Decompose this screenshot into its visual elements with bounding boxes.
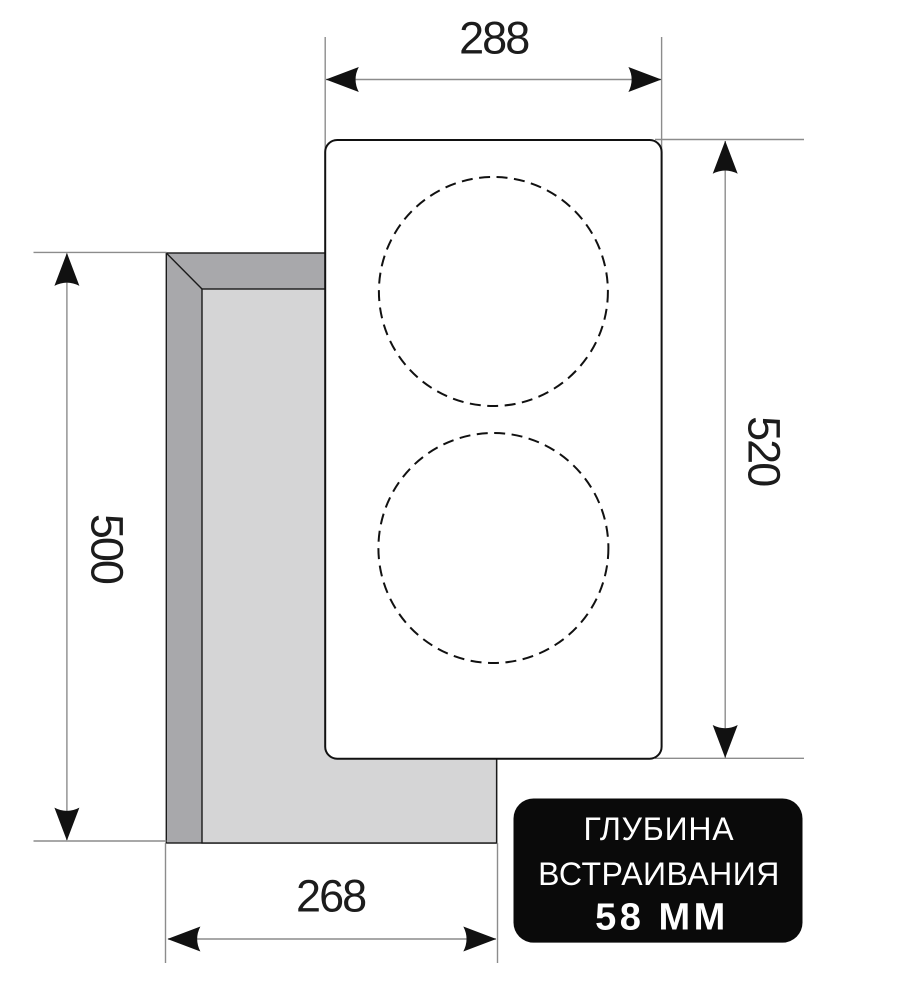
svg-text:ВСТРАИВАНИЯ: ВСТРАИВАНИЯ [538, 856, 780, 892]
svg-text:58 ММ: 58 ММ [595, 897, 729, 939]
svg-text:268: 268 [296, 870, 366, 921]
svg-text:288: 288 [459, 13, 529, 64]
svg-text:500: 500 [82, 514, 133, 584]
svg-text:520: 520 [739, 416, 790, 486]
svg-text:ГЛУБИНА: ГЛУБИНА [584, 811, 735, 847]
